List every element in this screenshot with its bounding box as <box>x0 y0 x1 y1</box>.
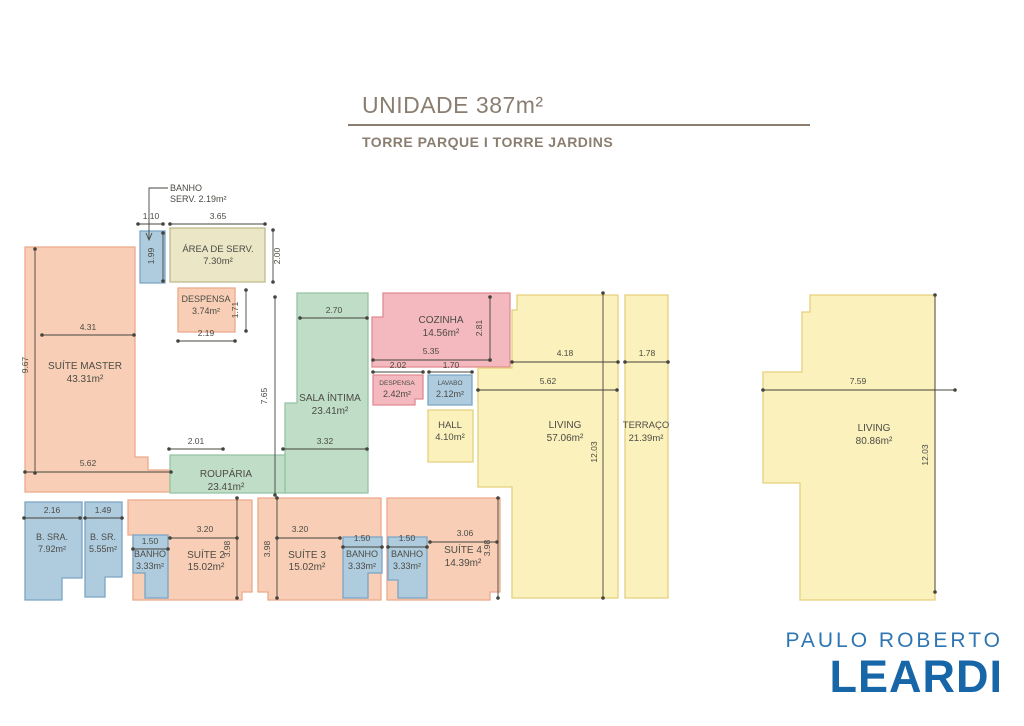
dim-dot <box>244 329 248 333</box>
dim-text-3.98: 3.98 <box>262 540 272 557</box>
dim-text-5.35: 5.35 <box>423 346 440 356</box>
room-label-banho-sr-0: B. SR. <box>90 532 116 542</box>
dim-text-3.98: 3.98 <box>482 539 492 556</box>
logo-name-main: LEARDI <box>785 654 1003 699</box>
dim-text-1.78: 1.78 <box>639 348 656 358</box>
dim-dot <box>271 228 275 232</box>
dim-dot <box>615 388 619 392</box>
room-label-sala-intima-1: 23.41m² <box>312 406 349 417</box>
dim-dot <box>386 545 390 549</box>
dim-dot <box>616 360 620 364</box>
dim-dot <box>496 596 500 600</box>
dim-dot <box>233 339 237 343</box>
dim-dot <box>235 496 239 500</box>
dim-text-2.02: 2.02 <box>390 360 407 370</box>
room-label-sala-intima-0: SALA ÍNTIMA <box>299 391 361 404</box>
room-label-terraco-0: TERRAÇO <box>623 420 669 431</box>
dim-dot <box>168 536 172 540</box>
dim-text-12.03: 12.03 <box>589 441 599 463</box>
dim-dot <box>933 590 937 594</box>
dim-text-3.32: 3.32 <box>317 436 334 446</box>
room-label-banho-sr-1: 5.55m² <box>89 544 117 554</box>
room-label-cozinha-1: 14.56m² <box>423 328 460 339</box>
dim-dot <box>380 545 384 549</box>
title-divider <box>348 124 810 126</box>
dim-dot <box>281 447 285 451</box>
room-living-direito <box>763 295 935 600</box>
room-label-hall-0: HALL <box>438 420 462 431</box>
dim-dot <box>40 333 44 337</box>
dim-dot <box>425 545 429 549</box>
dim-dot <box>263 222 267 226</box>
dim-dot <box>275 536 279 540</box>
room-label-lavabo-1: 2.12m² <box>436 389 464 399</box>
dim-dot <box>22 516 26 520</box>
room-area-de-servico <box>170 228 265 282</box>
room-label-living-esquerdo-0: LIVING <box>549 420 582 431</box>
dim-dot <box>365 316 369 320</box>
dim-text-2.01: 2.01 <box>188 436 205 446</box>
room-label-lavabo-0: LAVABO <box>437 380 462 387</box>
room-label-rouparia-0: ROUPÁRIA <box>200 467 253 480</box>
dim-dot <box>83 516 87 520</box>
dim-text-2.81: 2.81 <box>474 319 484 336</box>
dim-text-1.50: 1.50 <box>142 536 159 546</box>
dim-dot <box>161 279 165 283</box>
room-label-suite-master-0: SUÍTE MASTER <box>48 359 122 372</box>
dim-text-12.03: 12.03 <box>920 444 930 466</box>
dim-text-1.70: 1.70 <box>443 360 460 370</box>
dim-dot <box>161 222 165 226</box>
dim-text-2.19: 2.19 <box>198 328 215 338</box>
room-label-cozinha-0: COZINHA <box>419 315 464 326</box>
dim-dot <box>168 222 172 226</box>
room-label-hall-1: 4.10m² <box>435 432 465 443</box>
dim-dot <box>235 596 239 600</box>
dim-text-3.20: 3.20 <box>292 524 309 534</box>
dim-text-5.62: 5.62 <box>80 458 97 468</box>
dim-dot <box>623 360 627 364</box>
room-label-banho-suite-2-1: 3.33m² <box>136 561 164 571</box>
dim-dot <box>33 247 37 251</box>
dim-dot <box>275 496 279 500</box>
room-label-area-de-servico-1: 7.30m² <box>203 256 233 267</box>
dim-dot <box>365 447 369 451</box>
dim-dot <box>23 470 27 474</box>
dim-dot <box>221 447 225 451</box>
dim-dot <box>176 339 180 343</box>
floor-plan-page: ÁREA DE SERV.7.30m²DESPENSA3.74m²SUÍTE M… <box>0 0 1024 726</box>
dim-text-1.50: 1.50 <box>354 533 371 543</box>
room-label-living-direito-0: LIVING <box>858 423 891 434</box>
dim-text-7.59: 7.59 <box>850 376 867 386</box>
page-title: UNIDADE 387m² <box>362 92 822 119</box>
company-logo: PAULO ROBERTO LEARDI <box>785 629 1003 699</box>
room-label-living-direito-1: 80.86m² <box>856 436 893 447</box>
dim-text-5.62: 5.62 <box>540 376 557 386</box>
dim-dot <box>131 547 135 551</box>
dim-text-1.99: 1.99 <box>146 247 156 264</box>
dim-dot <box>338 536 342 540</box>
dim-dot <box>488 295 492 299</box>
room-label-banho-suite-4-1: 3.33m² <box>393 561 421 571</box>
dim-text-1.50: 1.50 <box>399 533 416 543</box>
dim-text-3.20: 3.20 <box>197 524 214 534</box>
dim-dot <box>298 316 302 320</box>
dim-text-1.49: 1.49 <box>95 505 112 515</box>
dim-dot <box>371 358 375 362</box>
room-label-rouparia-1: 23.41m² <box>208 482 245 493</box>
dim-dot <box>428 540 432 544</box>
dim-dot <box>601 596 605 600</box>
dim-dot <box>601 291 605 295</box>
room-label-terraco-1: 21.39m² <box>629 433 664 444</box>
dim-dot <box>427 370 431 374</box>
dim-dot <box>273 295 277 299</box>
dim-dot <box>169 470 173 474</box>
dim-dot <box>510 360 514 364</box>
dim-text-4.31: 4.31 <box>80 322 97 332</box>
dim-dot <box>488 358 492 362</box>
page-subtitle: TORRE PARQUE I TORRE JARDINS <box>362 134 613 150</box>
dim-dot <box>761 388 765 392</box>
plan-header: UNIDADE 387m² <box>362 92 822 119</box>
dim-dot <box>132 333 136 337</box>
room-label-banho-suite-4-0: BANHO <box>391 549 423 559</box>
dim-dot <box>933 293 937 297</box>
dim-dot <box>166 547 170 551</box>
dim-dot <box>78 516 82 520</box>
dim-dot <box>161 231 165 235</box>
dim-text-3.06: 3.06 <box>457 528 474 538</box>
dim-text-4.18: 4.18 <box>557 348 574 358</box>
dim-text-1.10: 1.10 <box>143 211 160 221</box>
dim-dot <box>953 388 957 392</box>
room-label-suite-2-0: SUÍTE 2 <box>187 548 225 561</box>
room-label-banho-sra-1: 7.92m² <box>38 544 66 554</box>
room-label-banho-suite-3-1: 3.33m² <box>348 561 376 571</box>
dim-text-2.70: 2.70 <box>326 305 343 315</box>
room-label-despensa-inferior-0: DESPENSA <box>379 380 415 387</box>
dim-text-3.65: 3.65 <box>210 211 227 221</box>
room-label-suite-3-0: SUÍTE 3 <box>288 548 326 561</box>
room-label-suite-3-1: 15.02m² <box>289 562 326 573</box>
room-label-banho-suite-3-0: BANHO <box>346 549 378 559</box>
dim-text-1.71: 1.71 <box>230 301 240 318</box>
dim-dot <box>470 370 474 374</box>
room-label-banho-sra-0: B. SRA. <box>36 532 68 542</box>
dim-text-9.67: 9.67 <box>20 356 30 373</box>
dim-dot <box>666 360 670 364</box>
dim-dot <box>273 493 277 497</box>
dim-dot <box>275 596 279 600</box>
dim-dot <box>371 370 375 374</box>
logo-name-top: PAULO ROBERTO <box>785 629 1003 653</box>
dim-dot <box>244 288 248 292</box>
dim-text-3.98: 3.98 <box>222 540 232 557</box>
dim-dot <box>120 516 124 520</box>
room-label-suite-master-1: 43.31m² <box>67 374 104 385</box>
leader-label-line1: BANHO <box>170 183 202 193</box>
room-label-suite-4-0: SUÍTE 4 <box>444 543 482 556</box>
dim-dot <box>421 370 425 374</box>
room-label-banho-suite-2-0: BANHO <box>134 549 166 559</box>
dim-text-2.16: 2.16 <box>44 505 61 515</box>
room-label-despensa-inferior-1: 2.42m² <box>383 389 411 399</box>
room-label-suite-2-1: 15.02m² <box>188 562 225 573</box>
dim-dot <box>136 222 140 226</box>
dim-dot <box>271 280 275 284</box>
dim-dot <box>341 545 345 549</box>
room-terraco <box>625 295 668 598</box>
dim-dot <box>476 388 480 392</box>
leader-label-line2: SERV. 2.19m² <box>170 194 227 204</box>
room-label-area-de-servico-0: ÁREA DE SERV. <box>182 244 253 255</box>
dim-dot <box>496 496 500 500</box>
dim-text-7.65: 7.65 <box>259 387 269 404</box>
room-label-despensa-superior-1: 3.74m² <box>192 306 220 316</box>
dim-text-2.00: 2.00 <box>272 247 282 264</box>
room-label-suite-4-1: 14.39m² <box>445 558 482 569</box>
room-label-despensa-superior-0: DESPENSA <box>181 294 230 304</box>
dim-dot <box>167 447 171 451</box>
room-label-living-esquerdo-1: 57.06m² <box>547 433 584 444</box>
